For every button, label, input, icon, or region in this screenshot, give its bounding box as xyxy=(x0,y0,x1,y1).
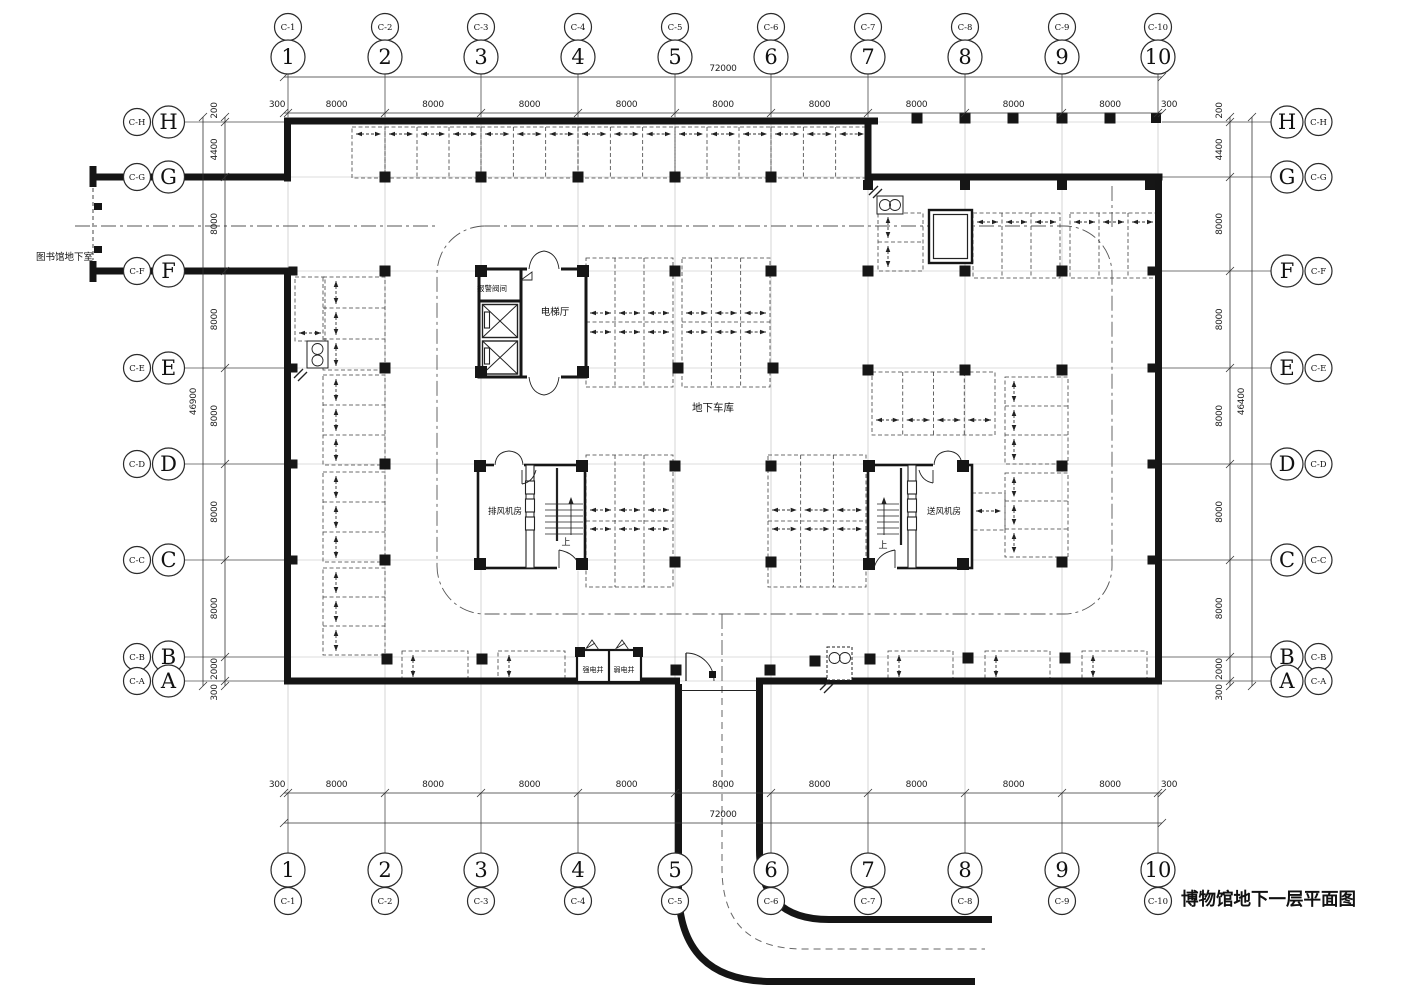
equipment-box xyxy=(827,647,852,680)
column-marker xyxy=(289,460,298,469)
corridor-jamb xyxy=(94,246,102,253)
grid-bubble-right-label: G xyxy=(1279,165,1296,189)
grid-bubble-top-label: 7 xyxy=(861,45,874,69)
grid-bubble-left-label: A xyxy=(160,669,177,693)
column-marker xyxy=(863,365,874,376)
parking-stall-group xyxy=(872,372,995,435)
corridor-jamb xyxy=(94,203,102,210)
grid-bubble-left-label: E xyxy=(161,356,176,380)
column-marker xyxy=(476,172,487,183)
column-marker xyxy=(1057,365,1068,376)
column-marker xyxy=(765,665,776,676)
dimension-label: 300 xyxy=(1215,684,1225,701)
dimension-label: 8000 xyxy=(1215,405,1225,427)
equipment-box xyxy=(877,196,903,214)
grid-bubble-right-sub-label: C-F xyxy=(1311,267,1326,277)
column-marker xyxy=(960,180,970,190)
column-marker xyxy=(670,461,681,472)
column-marker xyxy=(863,460,875,472)
parking-stall-group xyxy=(973,213,1060,278)
dimension-label: 8000 xyxy=(326,100,348,110)
dimension-label: 200 xyxy=(1215,102,1225,119)
column-marker xyxy=(380,555,391,566)
parking-stall-group xyxy=(1070,213,1157,278)
dimension-label: 8000 xyxy=(712,780,734,790)
grid-bubble-top-label: 5 xyxy=(668,45,681,69)
vent-shaft xyxy=(526,499,535,512)
parking-stall-group xyxy=(323,277,385,370)
column-marker xyxy=(1057,113,1068,124)
dimension-label: 8000 xyxy=(809,100,831,110)
shaft-room xyxy=(929,210,972,263)
column-marker xyxy=(766,172,777,183)
column-marker xyxy=(912,113,923,124)
dimension-label: 8000 xyxy=(1099,780,1121,790)
column-marker xyxy=(576,558,588,570)
door-gap xyxy=(527,374,561,381)
dimension-label: 8000 xyxy=(906,100,928,110)
grid-bubble-bottom-label: 7 xyxy=(861,858,874,882)
grid-bubble-right-sub-label: C-C xyxy=(1311,556,1327,566)
grid-bubble-bottom-label: 6 xyxy=(764,858,777,882)
dimension-label: 300 xyxy=(269,780,286,790)
door-gap xyxy=(494,463,524,468)
column-marker xyxy=(863,558,875,570)
grid-bubble-top-label: 9 xyxy=(1055,45,1068,69)
column-marker xyxy=(766,266,777,277)
label-weak-electric-shaft: 弱电井 xyxy=(614,665,635,674)
grid-bubble-top-sub-label: C-1 xyxy=(281,23,296,33)
label-alarm-valve-room: 报警阀间 xyxy=(477,283,507,293)
overall-dimension-label: 72000 xyxy=(709,810,737,820)
parking-stall-group xyxy=(586,258,673,387)
grid-bubble-right-sub-label: C-B xyxy=(1311,653,1327,663)
dimension-label: 2000 xyxy=(210,658,220,680)
column-marker xyxy=(768,363,779,374)
label-elevator-hall: 电梯厅 xyxy=(541,306,570,318)
wall-bottom-right xyxy=(756,678,1162,685)
column-marker xyxy=(1148,364,1157,373)
label-stair-up: 上 xyxy=(878,540,887,551)
grid-bubble-left-sub-label: C-D xyxy=(129,460,145,470)
column-marker xyxy=(670,266,681,277)
grid-bubble-right-label: E xyxy=(1279,356,1294,380)
column-marker xyxy=(1057,461,1068,472)
grid-bubble-bottom-sub-label: C-1 xyxy=(281,897,296,907)
counterweight xyxy=(485,312,490,328)
column-marker xyxy=(576,460,588,472)
grid-bubble-top-label: 8 xyxy=(958,45,971,69)
grid-bubble-bottom-sub-label: C-8 xyxy=(958,897,973,907)
column-marker xyxy=(960,113,971,124)
grid-bubble-top-label: 1 xyxy=(281,45,294,69)
grid-bubble-bottom-sub-label: C-5 xyxy=(668,897,683,907)
corridor-end-cap xyxy=(90,261,97,282)
column-marker xyxy=(670,172,681,183)
parking-stall-group xyxy=(323,375,385,465)
label-exhaust-fan-room: 排风机房 xyxy=(488,506,522,517)
ramp-walls xyxy=(679,682,993,982)
dimension-label: 8000 xyxy=(906,780,928,790)
column-marker xyxy=(1057,180,1067,190)
dimension-label: 8000 xyxy=(1215,597,1225,619)
column-marker xyxy=(289,364,298,373)
column-marker xyxy=(474,460,486,472)
grid-bubble-left-sub-label: C-G xyxy=(129,173,145,183)
parking-stall-group xyxy=(586,455,673,587)
parking-stall-group xyxy=(1005,377,1068,464)
parking-stall-group xyxy=(402,651,468,681)
grid-bubble-bottom-sub-label: C-9 xyxy=(1055,897,1070,907)
column-marker xyxy=(1008,113,1019,124)
grid-bubble-right-label: F xyxy=(1280,259,1295,283)
wall-right xyxy=(1155,174,1162,685)
label-strong-electric-shaft: 强电井 xyxy=(583,665,604,674)
dimension-label: 8000 xyxy=(1215,308,1225,330)
column-marker xyxy=(475,366,487,378)
elevator-core xyxy=(479,251,586,395)
grid-bubble-bottom-sub-label: C-6 xyxy=(764,897,779,907)
column-marker xyxy=(380,363,391,374)
dimension-label: 300 xyxy=(210,684,220,701)
grid-bubble-left-sub-label: C-C xyxy=(129,556,145,566)
column-marker xyxy=(810,656,821,667)
parking-stall-group xyxy=(878,213,923,271)
grid-bubble-left-label: G xyxy=(160,165,177,189)
grid-bubble-bottom-label: 4 xyxy=(571,858,584,882)
column-marker xyxy=(863,180,873,190)
parking-stall-group xyxy=(323,472,385,562)
grid-bubble-top-sub-label: C-6 xyxy=(764,23,779,33)
column-marker xyxy=(963,653,974,664)
floor-plan-canvas: 3008000800080008000800080008000800080003… xyxy=(0,0,1414,1000)
grid-bubble-left-label: F xyxy=(161,259,176,283)
grid-bubble-right-sub-label: C-G xyxy=(1310,173,1326,183)
parking-stall-group xyxy=(295,277,325,341)
grid-bubble-top-sub-label: C-2 xyxy=(378,23,393,33)
dimension-label: 8000 xyxy=(210,405,220,427)
column-marker xyxy=(382,654,393,665)
column-marker xyxy=(1057,557,1068,568)
column-marker xyxy=(633,647,643,657)
column-marker xyxy=(1057,266,1068,277)
grid-bubble-left-label: D xyxy=(160,452,177,476)
grid-bubble-top-sub-label: C-4 xyxy=(571,23,586,33)
column-marker xyxy=(863,266,874,277)
dimension-label: 8000 xyxy=(210,308,220,330)
column-marker xyxy=(671,665,682,676)
grid-bubble-bottom-label: 1 xyxy=(281,858,294,882)
dimension-label: 4400 xyxy=(1215,138,1225,160)
grid-bubble-top-sub-label: C-3 xyxy=(474,23,489,33)
dimension-label: 8000 xyxy=(422,100,444,110)
grid-bubble-top-label: 2 xyxy=(378,45,391,69)
door-gap xyxy=(873,566,897,571)
dimension-label: 8000 xyxy=(210,501,220,523)
dimension-label: 8000 xyxy=(1215,213,1225,235)
wall-top xyxy=(284,118,878,125)
column-marker xyxy=(670,557,681,568)
parking-stall-group xyxy=(578,127,675,178)
shaft-room-outer xyxy=(929,210,972,263)
grid-bubble-left-sub-label: C-F xyxy=(129,267,144,277)
grid-bubble-left-sub-label: C-A xyxy=(129,677,145,687)
grid-bubble-right-label: D xyxy=(1279,452,1296,476)
grid-bubble-bottom-label: 8 xyxy=(958,858,971,882)
grid-bubble-top-sub-label: C-8 xyxy=(958,23,973,33)
column-marker xyxy=(1148,460,1157,469)
grid-bubble-right-sub-label: C-D xyxy=(1310,460,1326,470)
dimension-label: 8000 xyxy=(210,213,220,235)
wall-left-lower xyxy=(284,268,291,685)
dimension-label: 8000 xyxy=(519,100,541,110)
dimension-label: 8000 xyxy=(519,780,541,790)
grid-bubble-bottom-sub-label: C-7 xyxy=(861,897,876,907)
dimension-label: 8000 xyxy=(1215,501,1225,523)
grid-bubble-right-label: H xyxy=(1278,110,1296,134)
grid-bubble-bottom-sub-label: C-4 xyxy=(571,897,586,907)
label-supply-fan-room: 送风机房 xyxy=(927,506,961,517)
dimension-label: 8000 xyxy=(326,780,348,790)
column-marker xyxy=(766,461,777,472)
column-marker xyxy=(474,558,486,570)
dimension-label: 8000 xyxy=(616,100,638,110)
ramp-outer-wall xyxy=(679,684,976,982)
column-marker xyxy=(1145,180,1155,190)
column-marker xyxy=(380,459,391,470)
parking-stall-group xyxy=(682,258,770,387)
grid-bubble-left-label: H xyxy=(159,110,177,134)
dimension-label: 8000 xyxy=(712,100,734,110)
column-marker xyxy=(960,365,971,376)
grid-bubble-right-sub-label: C-H xyxy=(1310,118,1327,128)
dimension-label: 8000 xyxy=(422,780,444,790)
column-marker xyxy=(1105,113,1116,124)
grid-bubble-top-label: 10 xyxy=(1145,45,1172,69)
parking-stall-group xyxy=(1082,651,1147,681)
dimension-label: 8000 xyxy=(1003,780,1025,790)
column-marker xyxy=(1148,556,1157,565)
vent-shaft xyxy=(526,517,535,530)
column-marker xyxy=(475,265,487,277)
dimension-label: 4400 xyxy=(210,138,220,160)
parking-stall-group xyxy=(385,127,481,178)
grid-bubble-right-label: A xyxy=(1278,669,1295,693)
grid-bubble-top-sub-label: C-9 xyxy=(1055,23,1070,33)
parking-stall-group xyxy=(888,651,953,681)
grid-bubble-bottom-sub-label: C-2 xyxy=(378,897,393,907)
grid-bubble-left-label: C xyxy=(160,548,176,572)
label-library-basement: 图书馆地下室 xyxy=(36,251,93,263)
dimension-label: 8000 xyxy=(1003,100,1025,110)
parking-stall-group xyxy=(771,127,868,178)
wall-left-upper xyxy=(284,118,291,182)
grid-bubble-bottom-label: 2 xyxy=(378,858,391,882)
column-marker xyxy=(960,266,971,277)
column-marker xyxy=(1148,267,1157,276)
drawing-title: 博物馆地下一层平面图 xyxy=(1181,889,1356,910)
grid-bubble-left-sub-label: C-H xyxy=(129,118,146,128)
vent-shaft xyxy=(908,517,917,530)
vent-shaft xyxy=(908,499,917,512)
grid-bubble-left-sub-label: C-B xyxy=(129,653,145,663)
column-marker xyxy=(577,265,589,277)
column-marker xyxy=(289,556,298,565)
structural-columns xyxy=(289,113,1162,676)
parking-stall-group xyxy=(972,493,1005,530)
column-marker xyxy=(766,557,777,568)
dimension-label: 200 xyxy=(210,102,220,119)
grid-bubble-right-label: C xyxy=(1279,548,1295,572)
grid-bubble-top-label: 4 xyxy=(571,45,584,69)
grid-bubble-bottom-sub-label: C-10 xyxy=(1148,897,1168,907)
parking-stall-group xyxy=(481,127,578,178)
grid-bubble-bottom-label: 3 xyxy=(474,858,487,882)
dimension-label: 300 xyxy=(1161,100,1178,110)
parking-stall-group xyxy=(675,127,771,178)
grid-bubble-top-sub-label: C-7 xyxy=(861,23,876,33)
grid-bubble-top-sub-label: C-5 xyxy=(668,23,683,33)
counterweight xyxy=(485,348,490,364)
overall-dimension-label: 46900 xyxy=(189,387,199,415)
column-marker xyxy=(477,654,488,665)
grid-bubble-top-label: 3 xyxy=(474,45,487,69)
overall-dimension-label: 46400 xyxy=(1237,387,1247,415)
overall-dimension-label: 72000 xyxy=(709,64,737,74)
dimension-label: 8000 xyxy=(210,597,220,619)
grid-bubble-bottom-label: 9 xyxy=(1055,858,1068,882)
column-marker xyxy=(289,267,298,276)
column-marker xyxy=(577,366,589,378)
parking-stall-group xyxy=(323,568,385,655)
grid-bubble-top-sub-label: C-10 xyxy=(1148,23,1168,33)
grid-bubble-left-sub-label: C-E xyxy=(129,364,145,374)
grid-bubble-top-label: 6 xyxy=(764,45,777,69)
label-garage: 地下车库 xyxy=(692,401,734,414)
parking-stall-group xyxy=(985,651,1050,681)
dimension-label: 8000 xyxy=(1099,100,1121,110)
column-marker xyxy=(573,172,584,183)
dimension-label: 2000 xyxy=(1215,658,1225,680)
column-marker xyxy=(1060,653,1071,664)
parking-stall-group xyxy=(1005,473,1068,557)
grid-bubble-bottom-label: 5 xyxy=(668,858,681,882)
grid-bubble-right-sub-label: C-A xyxy=(1311,677,1327,687)
label-stair-up: 上 xyxy=(561,537,570,548)
column-marker xyxy=(380,266,391,277)
dimension-label: 300 xyxy=(1161,780,1178,790)
floor-plan-page: 3008000800080008000800080008000800080003… xyxy=(0,0,1414,1000)
building-walls xyxy=(90,118,1163,685)
vent-shaft xyxy=(908,481,917,494)
column-marker xyxy=(575,647,585,657)
column-marker xyxy=(957,460,969,472)
door-stop xyxy=(709,671,716,678)
grid-bubble-bottom-sub-label: C-3 xyxy=(474,897,489,907)
column-marker xyxy=(673,363,684,374)
wall-top-right xyxy=(865,174,1163,181)
grid-lines xyxy=(184,74,1271,853)
parking-stall-group xyxy=(352,127,385,178)
electrical-shaft-rooms xyxy=(577,640,641,682)
grid-bubble-right-sub-label: C-E xyxy=(1311,364,1327,374)
corridor-end-cap xyxy=(90,166,97,187)
column-marker xyxy=(957,558,969,570)
parking-stall-group xyxy=(498,651,565,681)
column-marker xyxy=(865,654,876,665)
grid-bubble-bottom-label: 10 xyxy=(1145,858,1172,882)
dimension-label: 300 xyxy=(269,100,286,110)
dimension-label: 8000 xyxy=(809,780,831,790)
parking-stall-group xyxy=(768,455,866,587)
dimension-label: 8000 xyxy=(616,780,638,790)
column-marker xyxy=(380,172,391,183)
